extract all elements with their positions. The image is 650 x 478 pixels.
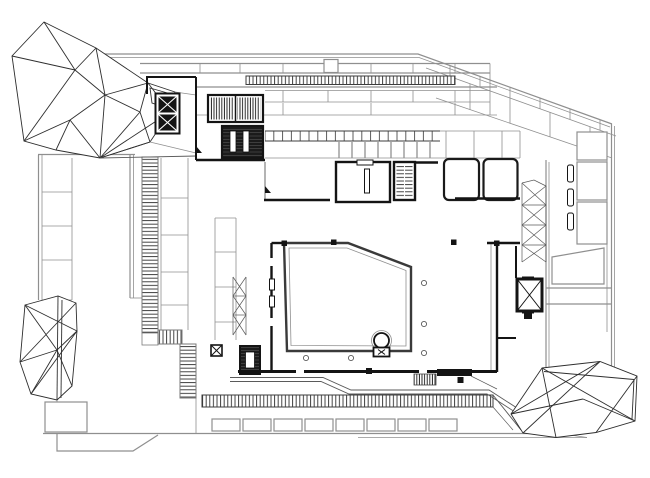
galleries	[211, 159, 546, 412]
column-box	[211, 345, 222, 356]
rounded-room-1	[444, 159, 479, 200]
rounded-room-2	[484, 159, 518, 200]
promenade-strip	[202, 395, 493, 407]
roof-box	[324, 60, 338, 73]
top-left-crystal	[12, 22, 175, 158]
colonnade	[265, 131, 520, 158]
stair-core	[208, 95, 263, 122]
columns	[303, 280, 426, 360]
faceted-strip-right	[522, 180, 546, 262]
floor-plan-drawing	[0, 0, 650, 473]
elevator-left-1	[159, 97, 177, 113]
stair-strips	[142, 76, 521, 430]
stair-strip-lower-left	[180, 344, 196, 398]
stair-strip-center	[142, 157, 158, 333]
escalator-strip-top	[246, 76, 455, 85]
right-rooms	[546, 132, 611, 368]
bottom-left-crystal	[20, 296, 77, 400]
door-swing-marker	[196, 146, 202, 153]
bottom-right-crystal	[511, 362, 637, 438]
elevator-left-2	[159, 115, 177, 131]
service-core	[222, 126, 263, 158]
main-gallery	[282, 240, 500, 352]
atrium-cells	[161, 158, 236, 340]
faceted-strip-left	[233, 277, 246, 335]
window-slots	[568, 165, 574, 230]
small-core	[240, 346, 260, 374]
entry-ramp	[57, 434, 158, 451]
elevator-right	[517, 277, 542, 320]
small-stair	[414, 374, 436, 385]
floor-plan-canvas	[0, 0, 650, 473]
room-block-top	[336, 159, 520, 202]
apse-dome	[372, 331, 392, 357]
